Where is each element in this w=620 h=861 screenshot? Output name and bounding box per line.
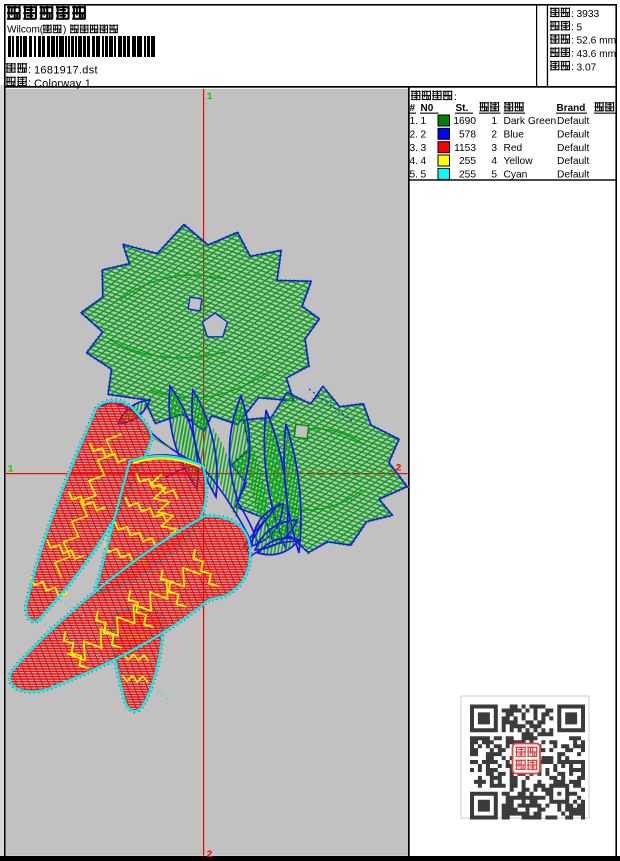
svg-text:2: 2: [421, 130, 427, 141]
svg-text:3: 3: [491, 143, 497, 154]
svg-text:Default: Default: [557, 116, 589, 127]
svg-text:4.: 4.: [410, 156, 419, 167]
svg-text:2.: 2.: [410, 130, 419, 141]
svg-text:Default: Default: [557, 170, 589, 181]
svg-text:Default: Default: [557, 143, 589, 154]
svg-text:Red: Red: [504, 143, 523, 154]
svg-text::: :: [571, 48, 574, 60]
svg-text:3: 3: [421, 143, 427, 154]
svg-text:5: 5: [577, 22, 583, 33]
svg-text:1: 1: [491, 116, 497, 127]
svg-text:Blue: Blue: [504, 130, 525, 141]
svg-text::: :: [454, 91, 457, 103]
svg-text:5: 5: [491, 170, 497, 181]
svg-text:1.: 1.: [410, 116, 419, 127]
svg-text:): ): [63, 25, 66, 36]
svg-text:Colorway 1: Colorway 1: [34, 78, 91, 90]
svg-text:1: 1: [207, 92, 213, 103]
svg-text:Default: Default: [557, 130, 589, 141]
svg-text:5: 5: [421, 170, 427, 181]
svg-text::: :: [28, 64, 31, 76]
svg-text::: :: [571, 8, 574, 20]
svg-text:Dark Green: Dark Green: [504, 116, 557, 127]
svg-text:#: #: [410, 103, 416, 114]
svg-text:43.6 mm: 43.6 mm: [577, 49, 617, 60]
svg-text:N0: N0: [421, 103, 434, 114]
svg-text:1: 1: [8, 465, 14, 476]
svg-text:3.: 3.: [410, 143, 419, 154]
svg-text:2: 2: [207, 850, 213, 861]
svg-text:2: 2: [491, 130, 497, 141]
svg-text::: :: [571, 21, 574, 33]
svg-text:3933: 3933: [577, 9, 600, 20]
svg-text:Brand: Brand: [557, 103, 586, 114]
svg-text:3.07: 3.07: [577, 62, 597, 73]
svg-text:1153: 1153: [454, 143, 476, 154]
svg-text:St.: St.: [456, 103, 469, 114]
svg-text:Wilcom(: Wilcom(: [7, 25, 44, 36]
svg-text:5.: 5.: [410, 170, 419, 181]
svg-text:255: 255: [459, 170, 476, 181]
svg-text:1681917.dst: 1681917.dst: [34, 65, 98, 77]
svg-text:2: 2: [396, 464, 402, 475]
svg-text:578: 578: [459, 130, 476, 141]
svg-text:4: 4: [421, 156, 427, 167]
svg-text::: :: [571, 34, 574, 46]
svg-text:1690: 1690: [453, 116, 476, 127]
svg-text:52.6 mm: 52.6 mm: [577, 36, 617, 47]
svg-text:255: 255: [459, 156, 476, 167]
svg-text::: :: [571, 61, 574, 73]
svg-text:4: 4: [491, 156, 497, 167]
svg-text:Default: Default: [557, 156, 589, 167]
svg-text:Yellow: Yellow: [504, 156, 534, 167]
svg-text:Cyan: Cyan: [504, 170, 528, 181]
svg-text:1: 1: [421, 116, 427, 127]
